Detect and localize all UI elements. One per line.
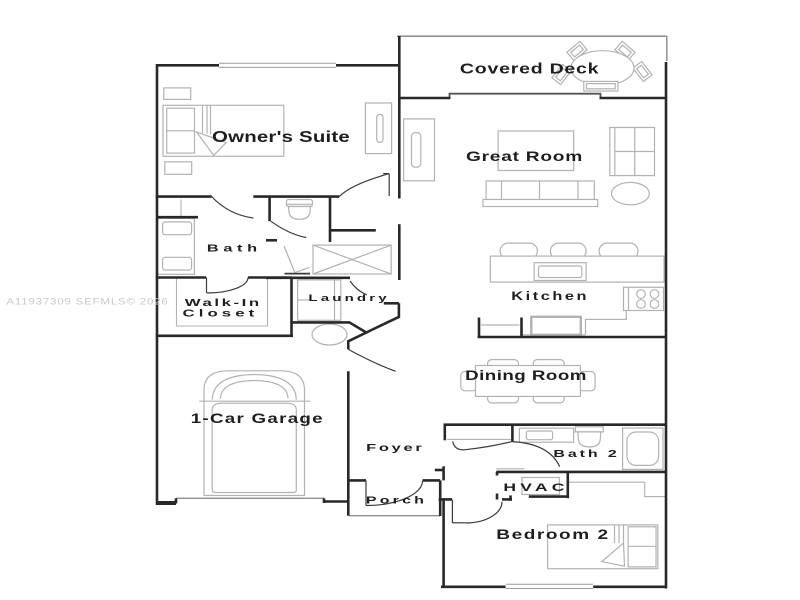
svg-text:HVAC: HVAC	[503, 482, 568, 494]
svg-text:Kitchen: Kitchen	[511, 290, 589, 303]
svg-text:Foyer: Foyer	[366, 442, 424, 453]
svg-text:Bath 2: Bath 2	[553, 448, 619, 459]
svg-text:Closet: Closet	[183, 307, 259, 319]
svg-text:Porch: Porch	[366, 495, 427, 506]
svg-text:Laundry: Laundry	[308, 293, 389, 303]
svg-text:Bedroom 2: Bedroom 2	[496, 526, 609, 542]
svg-text:Dining Room: Dining Room	[465, 368, 587, 383]
svg-text:A11937309 SEFMLS© 2026: A11937309 SEFMLS© 2026	[6, 297, 168, 308]
svg-text:Great Room: Great Room	[466, 148, 583, 164]
svg-text:Bath: Bath	[207, 243, 262, 254]
svg-text:Covered Deck: Covered Deck	[460, 60, 599, 77]
svg-text:Owner's Suite: Owner's Suite	[212, 129, 350, 146]
svg-text:1-Car Garage: 1-Car Garage	[191, 411, 324, 426]
